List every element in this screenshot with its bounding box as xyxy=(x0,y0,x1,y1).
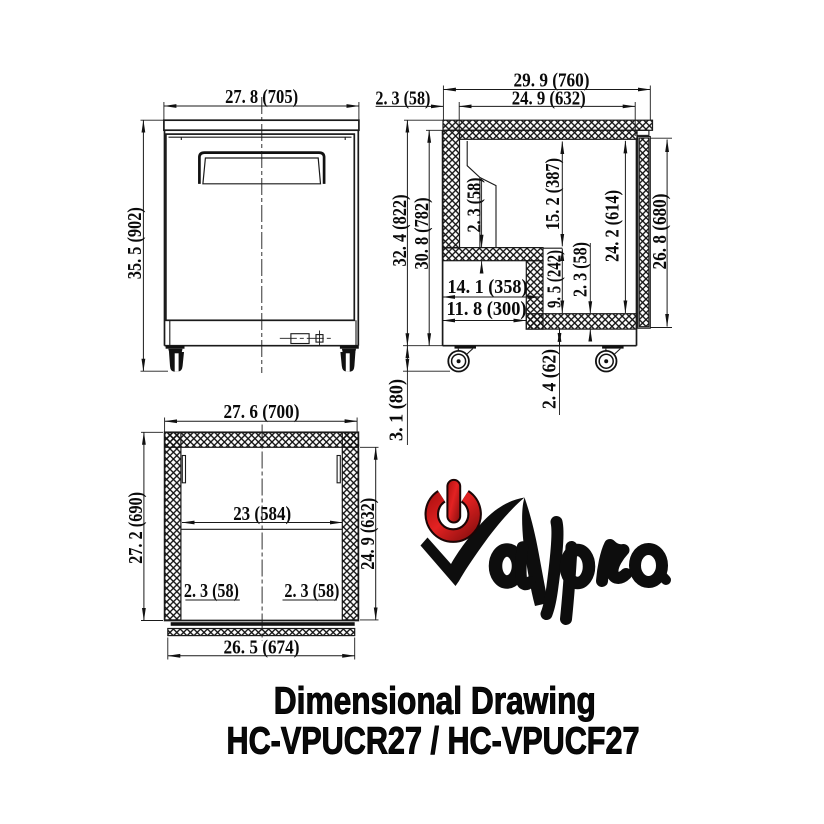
svg-text:2. 3 (58): 2. 3 (58) xyxy=(284,580,339,602)
svg-text:14. 1 (358): 14. 1 (358) xyxy=(448,276,528,298)
svg-text:30. 8 (782): 30. 8 (782) xyxy=(411,198,433,270)
svg-text:27. 6 (700): 27. 6 (700) xyxy=(224,401,300,423)
svg-text:15. 2 (387): 15. 2 (387) xyxy=(542,158,564,230)
svg-text:11. 8 (300): 11. 8 (300) xyxy=(447,298,527,320)
svg-text:24. 9 (632): 24. 9 (632) xyxy=(357,498,379,570)
svg-text:3. 1 (80): 3. 1 (80) xyxy=(386,379,408,441)
svg-text:32. 4 (822): 32. 4 (822) xyxy=(389,195,411,267)
svg-text:HC-VPUCR27 / HC-VPUCF27: HC-VPUCR27 / HC-VPUCF27 xyxy=(227,720,640,762)
svg-text:9. 5 (242): 9. 5 (242) xyxy=(543,250,565,308)
svg-text:24. 2 (614): 24. 2 (614) xyxy=(601,190,623,262)
svg-text:2. 4 (62): 2. 4 (62) xyxy=(539,349,561,409)
svg-text:27. 2 (690): 27. 2 (690) xyxy=(125,492,147,564)
svg-text:2. 3 (58): 2. 3 (58) xyxy=(184,580,239,602)
svg-text:Dimensional Drawing: Dimensional Drawing xyxy=(274,681,596,723)
svg-text:35. 5 (902): 35. 5 (902) xyxy=(124,207,146,279)
svg-text:26. 8 (680): 26. 8 (680) xyxy=(649,194,671,270)
svg-text:2. 3 (58): 2. 3 (58) xyxy=(570,242,592,297)
